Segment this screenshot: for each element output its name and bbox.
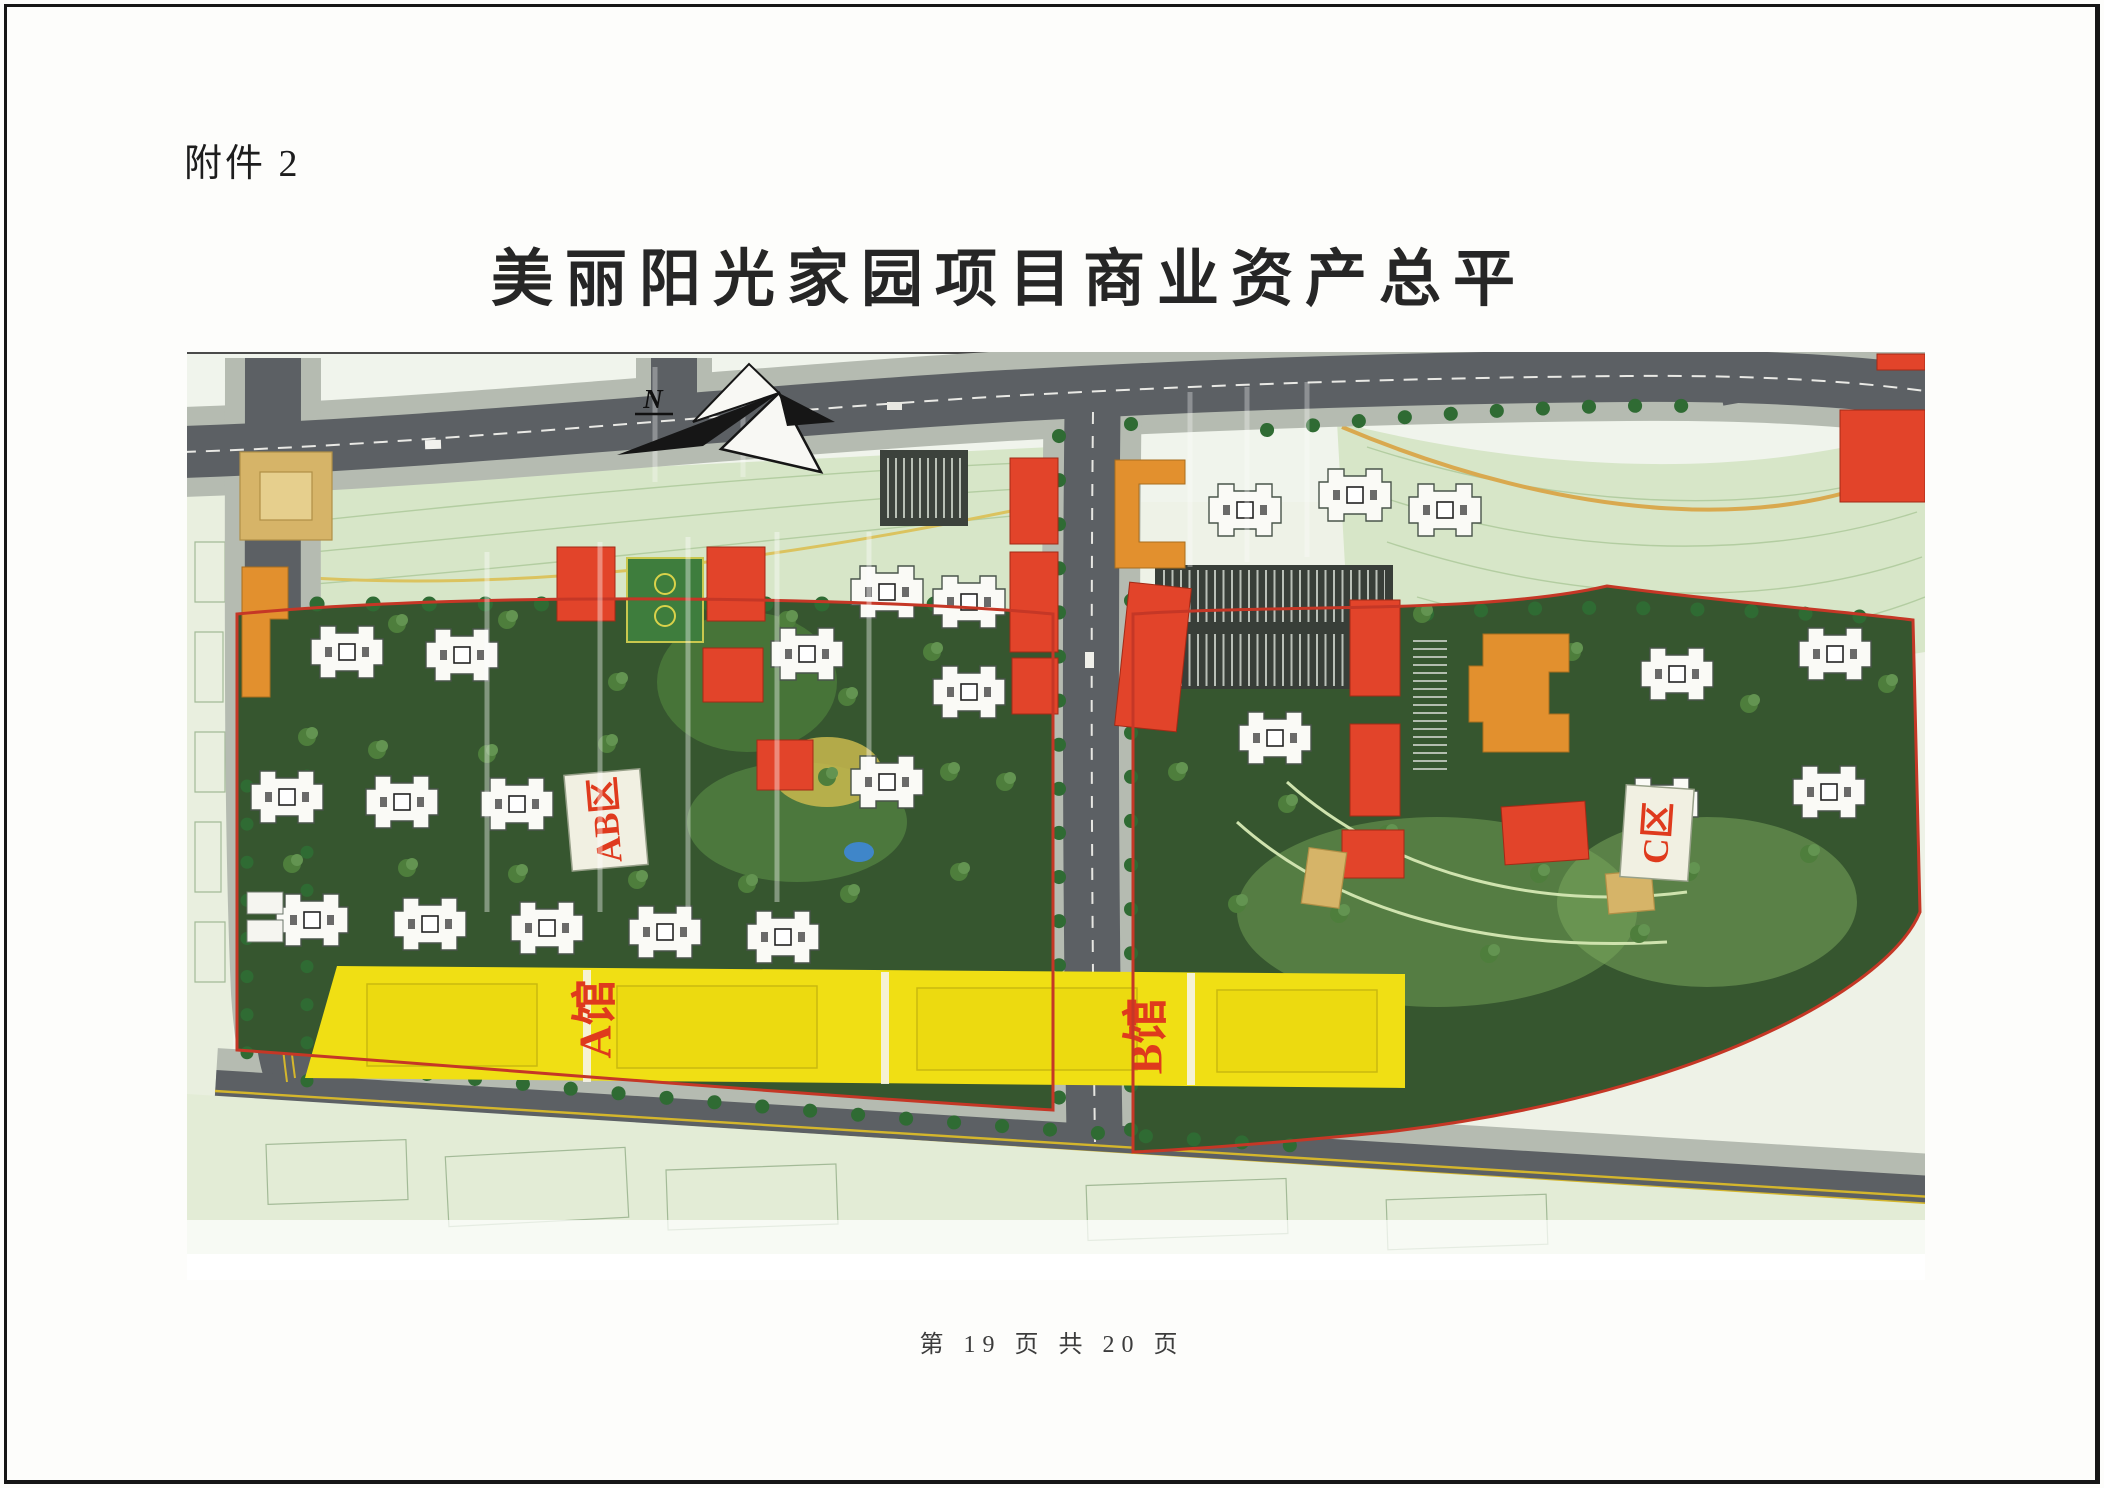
hall-label-b: B馆 [1121,998,1172,1075]
zone-label-ab: AB区 [582,775,629,864]
site-plan-map: A馆 B馆 AB区 C区 [187,352,1925,1280]
hall-label-a: A馆 [570,979,621,1058]
document-page: 附件 2 美丽阳光家园项目商业资产总平 [0,0,2104,1488]
page-footer: 第 19 页 共 20 页 [0,1324,2104,1359]
page-title: 美丽阳光家园项目商业资产总平 [0,228,2104,318]
attachment-label: 附件 2 [184,132,301,187]
zone-board-c: C区 [1620,785,1694,882]
commercial-strip: A馆 B馆 [305,966,1405,1088]
north-label: N [642,384,664,414]
zone-board-ab: AB区 [564,769,648,871]
zone-label-c: C区 [1635,801,1679,866]
